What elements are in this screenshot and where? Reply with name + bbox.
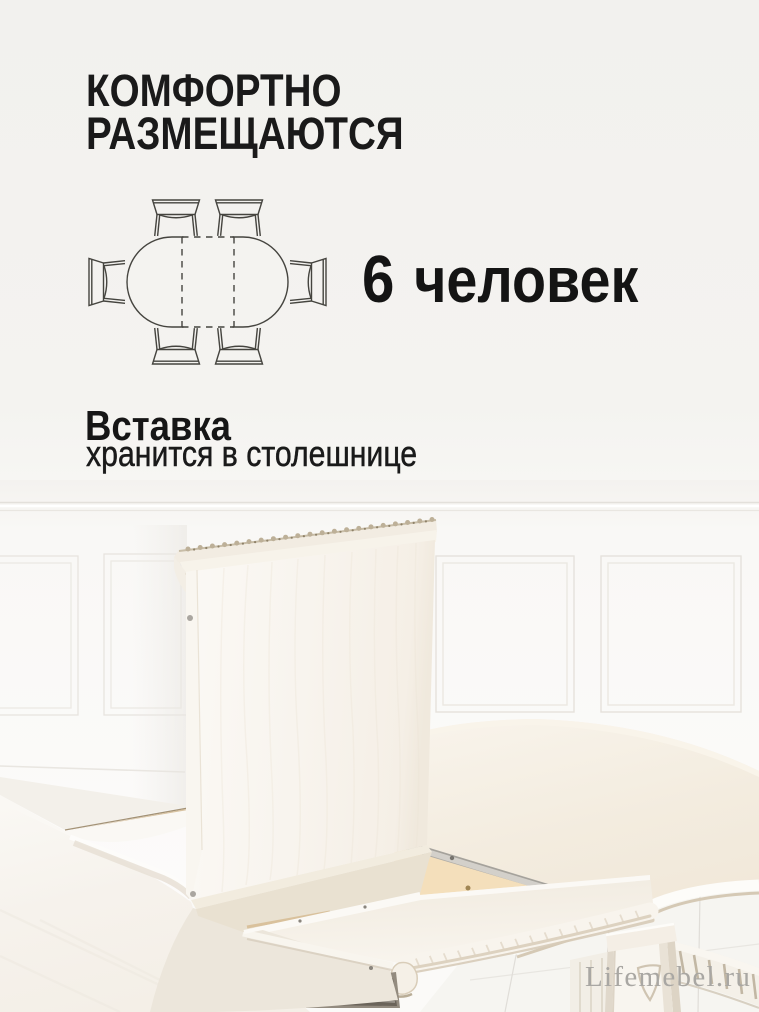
svg-text:Lifemebel.ru: Lifemebel.ru <box>585 961 751 993</box>
